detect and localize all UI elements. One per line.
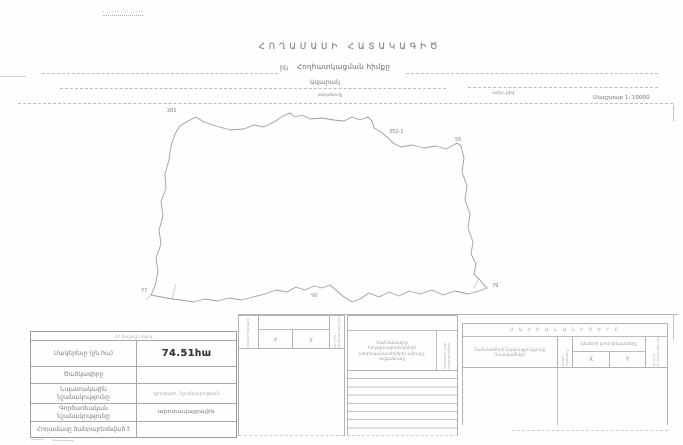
function-label: Գործառնական նշանակությունը	[31, 404, 137, 421]
boundary-x-header: X	[573, 352, 610, 367]
side-length-column: կողմի երկարությունը	[329, 316, 344, 348]
table-row: Ծածկագիրը	[31, 367, 236, 384]
neighbors-number-label: համարն ըստ հատակագծի	[443, 332, 451, 369]
parcel-boundary	[151, 113, 487, 302]
boundary-marks-table: Ս Ա Հ Մ Ա Ն Ա Ն Ի Շ Ե Ր Ը Սահմանների նկա…	[462, 323, 668, 425]
area-value: 74.51հա	[137, 341, 236, 366]
neighbors-empty-rows	[348, 371, 457, 435]
boundary-table-header: Սահմանների նկարագրությունը (հատվածներ) կ…	[463, 337, 667, 368]
purpose-value: գյուղատ. նշանակության	[137, 384, 236, 403]
function-value: արոտավայրային	[137, 404, 236, 421]
point-number-label: կետի համարը	[246, 317, 250, 347]
map-point-label: 79	[492, 283, 498, 289]
boundary-table-title: Ս Ա Հ Մ Ա Ն Ա Ն Ի Շ Ե Ր Ը	[463, 324, 667, 337]
xy-span-cell	[259, 316, 329, 330]
boundary-desc-header: Սահմանների նկարագրությունը (հատվածներ)	[463, 337, 558, 367]
boundary-coords-header: կետերի կոորդինատները	[573, 337, 645, 352]
boundary-xy-cells: X Y	[573, 352, 645, 367]
region-header: ՀՀ Տավուշի մարզ	[31, 332, 236, 341]
coordinates-header: կետի համարը x y կողմի երկարությունը	[239, 316, 344, 349]
table-row: Գործառնական նշանակությունը արոտավայրային	[31, 404, 236, 422]
encumbrance-value	[137, 422, 236, 438]
neighbors-number-column: համարն ըստ հատակագծի	[437, 331, 457, 370]
y-column-header: y	[293, 330, 329, 348]
boundary-body-empty	[463, 368, 667, 425]
map-point-label: 98	[311, 293, 317, 299]
table-row: Նպատակային նշանակությունը գյուղատ. նշանա…	[31, 384, 236, 404]
boundary-y-header: Y	[610, 352, 645, 367]
purpose-label: Նպատակային նշանակությունը	[31, 384, 137, 403]
neighbors-header-label: Սահմանակից հողօգտագործողների (սեփականատե…	[348, 331, 437, 370]
x-column-header: x	[259, 330, 293, 348]
scanned-cadastral-plan-page: ՀՈՂԱՄԱՍԻ ՀԱՏԱԿԱԳԻԾ ին Հողհատկացման հիմքը…	[0, 0, 683, 445]
encumbrance-label: Հողամասը ծանրաբեռնված է	[31, 422, 137, 438]
boundary-coords-columns: կետերի կոորդինատները X Y	[573, 337, 646, 367]
boundary-body-left	[463, 368, 558, 425]
point-number-column: կետի համարը	[239, 316, 259, 348]
xy-cells: x y	[259, 330, 329, 348]
parcel-attributes-table: ՀՀ Տավուշի մարզ Մակերեսը (ըն.հա) 74.51հա…	[30, 331, 237, 438]
map-point-label: 77	[141, 288, 147, 294]
neighbors-table: Սահմանակից հողօգտագործողների (սեփականատե…	[347, 315, 458, 436]
table-row: Մակերեսը (ըն.հա) 74.51հա	[31, 341, 236, 367]
coordinates-table: կետի համարը x y կողմի երկարությունը	[238, 315, 345, 436]
map-point-label: 55	[455, 137, 461, 143]
boundary-bottom-rule	[512, 430, 668, 431]
neighbors-top-row	[348, 316, 457, 331]
side-length-label: կողմի երկարությունը	[333, 317, 341, 347]
boundary-point-column: կետի համարը	[558, 337, 573, 367]
boundary-body-right	[558, 368, 667, 425]
area-label: Մակերեսը (ըն.հա)	[31, 341, 137, 366]
map-point-label: 352-1	[389, 129, 404, 135]
code-value	[137, 367, 236, 383]
table-row: Հողամասը ծանրաբեռնված է	[31, 422, 236, 438]
neighbors-header: Սահմանակից հողօգտագործողների (սեփականատե…	[348, 331, 457, 371]
tables-right-tick	[673, 314, 674, 340]
code-label: Ծածկագիրը	[31, 367, 137, 383]
map-point-label: 201	[167, 108, 177, 114]
coordinates-body-empty	[239, 349, 344, 436]
boundary-side-label: կողմի երկարությունը	[652, 338, 660, 366]
xy-columns: x y	[259, 316, 329, 348]
boundary-side-column: կողմի երկարությունը	[646, 337, 667, 367]
boundary-point-label: կետի համարը	[561, 338, 569, 366]
